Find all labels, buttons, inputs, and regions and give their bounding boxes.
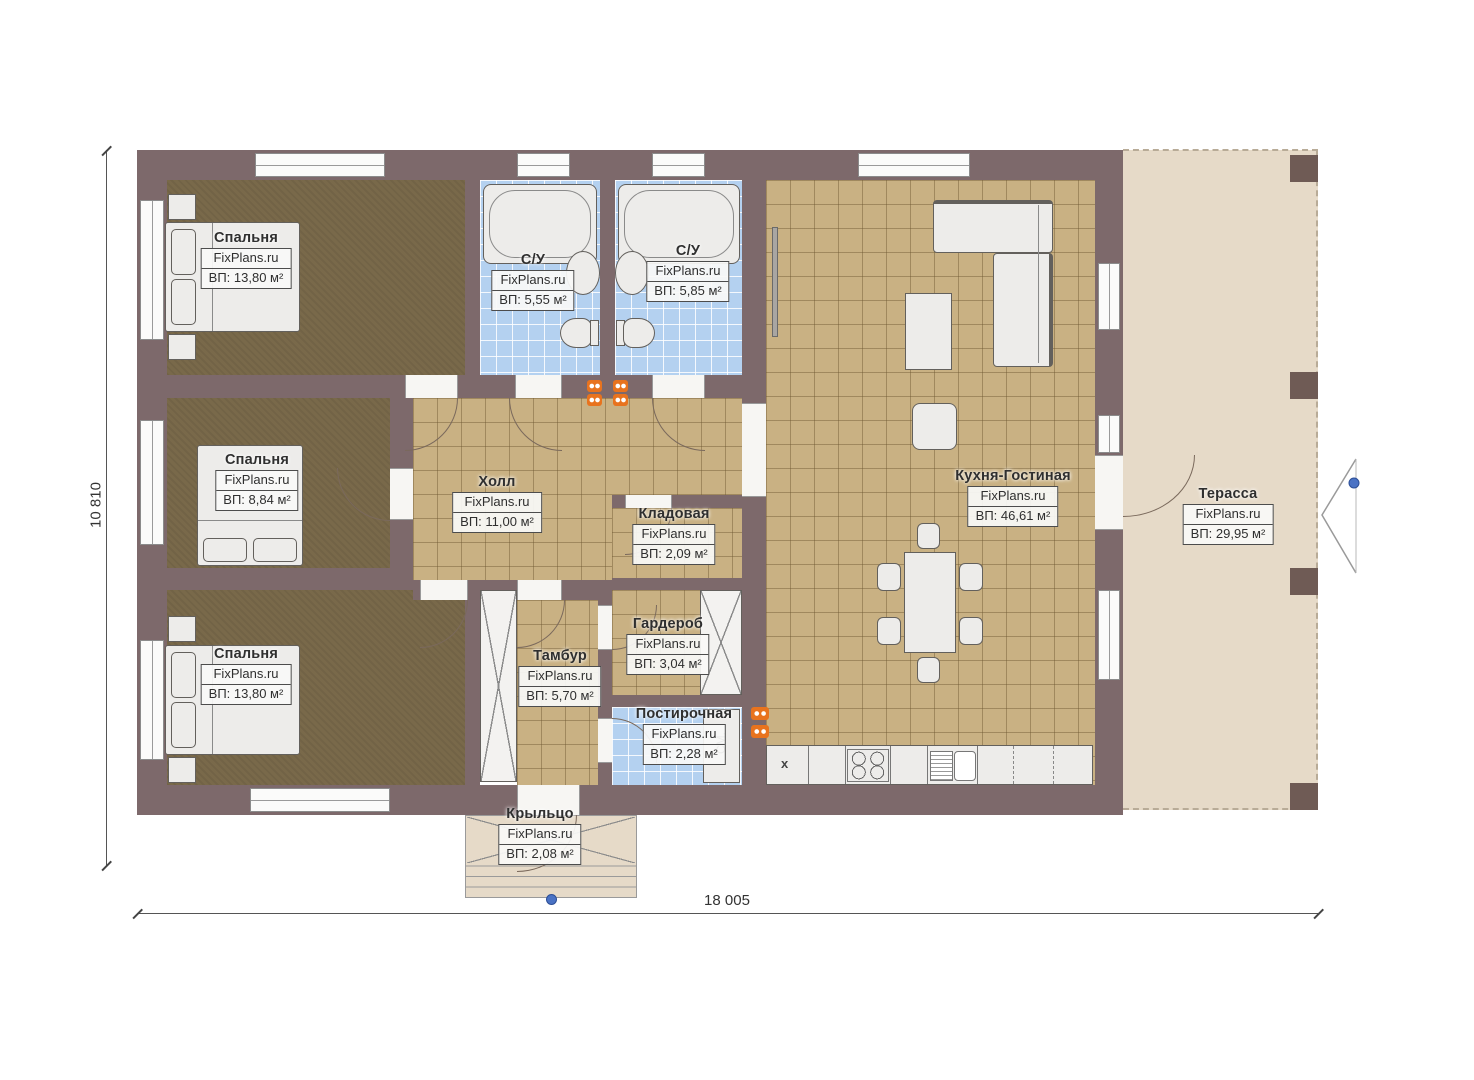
counter-divider — [890, 746, 891, 784]
wall-segment — [742, 180, 766, 403]
door-opening — [405, 375, 458, 398]
porch-entry-marker — [546, 894, 557, 905]
room-label-bedroom1: Спальня FixPlans.ru ВП: 13,80 м² — [201, 230, 292, 289]
room-label-storage: Кладовая FixPlans.ru ВП: 2,09 м² — [632, 506, 715, 565]
room-name: Тамбур — [533, 648, 587, 664]
room-label-porch: Крыльцо FixPlans.ru ВП: 2,08 м² — [498, 806, 581, 865]
terrace-door-opening — [1095, 455, 1123, 530]
sink — [615, 251, 649, 295]
dining-table — [904, 552, 956, 653]
room-area: ВП: 3,04 м² — [627, 655, 708, 674]
kitchen-passage-opening — [742, 403, 766, 497]
watermark: FixPlans.ru — [643, 725, 724, 745]
toilet — [623, 318, 655, 348]
room-label-hall: Холл FixPlans.ru ВП: 11,00 м² — [452, 474, 542, 533]
room-label-bath2: С/У FixPlans.ru ВП: 5,85 м² — [646, 243, 729, 302]
room-name: Спальня — [214, 646, 278, 662]
nightstand — [168, 616, 196, 642]
counter-divider — [1013, 746, 1014, 784]
toilet — [560, 318, 592, 348]
tv-panel — [772, 227, 778, 337]
bathtub-rim — [489, 190, 591, 258]
window — [140, 200, 164, 340]
watermark: FixPlans.ru — [647, 262, 728, 282]
dimension-width: 18 005 — [704, 892, 750, 909]
counter-divider — [927, 746, 928, 784]
door-opening — [598, 605, 612, 650]
blanket-line — [198, 520, 302, 521]
chair — [959, 563, 983, 591]
watermark: FixPlans.ru — [627, 635, 708, 655]
wall-segment — [137, 568, 413, 590]
watermark: FixPlans.ru — [216, 471, 297, 491]
pillow — [171, 702, 196, 748]
terrace-entry-arrow — [1312, 455, 1362, 577]
pillow — [203, 538, 247, 562]
room-name: С/У — [521, 252, 545, 268]
window — [140, 420, 164, 545]
counter-divider — [977, 746, 978, 784]
room-label-vestibule: Тамбур FixPlans.ru ВП: 5,70 м² — [518, 648, 601, 707]
watermark: FixPlans.ru — [1184, 505, 1273, 525]
floor-plan: СМ. x Спальня FixPlans.ru ВП: 13,80 м² С… — [0, 0, 1474, 1080]
riser-marker — [587, 394, 602, 406]
chair — [877, 617, 901, 645]
chair — [959, 617, 983, 645]
room-area: ВП: 5,85 м² — [647, 282, 728, 301]
sofa-cushion-line — [1038, 205, 1039, 363]
riser-marker — [751, 707, 769, 720]
watermark: FixPlans.ru — [492, 271, 573, 291]
window — [652, 153, 705, 177]
room-label-terrace: Терасса FixPlans.ru ВП: 29,95 м² — [1183, 486, 1274, 545]
door-opening — [598, 718, 612, 763]
terrace-edge-bottom — [1123, 808, 1318, 810]
kitchen-sink — [954, 751, 976, 781]
nightstand — [168, 334, 196, 360]
room-name: Спальня — [214, 230, 278, 246]
wall-segment — [465, 590, 480, 785]
watermark: FixPlans.ru — [519, 667, 600, 687]
room-area: ВП: 2,08 м² — [499, 845, 580, 864]
armchair — [912, 403, 957, 450]
window — [1098, 263, 1120, 330]
room-area: ВП: 5,55 м² — [492, 291, 573, 310]
room-label-bedroom2: Спальня FixPlans.ru ВП: 8,84 м² — [215, 452, 298, 511]
room-name: Крыльцо — [506, 806, 573, 822]
window — [255, 153, 385, 177]
terrace-pillar — [1290, 783, 1318, 810]
chair — [917, 657, 940, 683]
riser-marker — [613, 380, 628, 392]
room-area: ВП: 2,09 м² — [633, 545, 714, 564]
room-label-wardrobe: Гардероб FixPlans.ru ВП: 3,04 м² — [626, 616, 709, 675]
dimension-height: 10 810 — [88, 482, 105, 528]
room-name: Терасса — [1199, 486, 1258, 502]
pillow — [171, 229, 196, 275]
room-name: Гардероб — [633, 616, 703, 632]
counter-divider — [1053, 746, 1054, 784]
wall-segment — [600, 180, 615, 375]
watermark: FixPlans.ru — [633, 525, 714, 545]
room-area: ВП: 46,61 м² — [969, 507, 1058, 526]
room-name: Спальня — [225, 452, 289, 468]
door-opening — [390, 468, 413, 520]
chair — [877, 563, 901, 591]
room-area: ВП: 2,28 м² — [643, 745, 724, 764]
wall-segment — [742, 497, 766, 785]
pillow — [171, 279, 196, 325]
riser-marker — [587, 380, 602, 392]
room-name: Кладовая — [638, 506, 709, 522]
room-label-laundry: Постирочная FixPlans.ru ВП: 2,28 м² — [636, 706, 732, 765]
room-area: ВП: 11,00 м² — [453, 513, 541, 532]
room-name: Постирочная — [636, 706, 732, 722]
coffee-table — [905, 293, 952, 370]
counter-divider — [808, 746, 809, 784]
watermark: FixPlans.ru — [453, 493, 541, 513]
room-name: Кухня-Гостиная — [955, 468, 1071, 484]
riser-marker — [751, 725, 769, 738]
window — [517, 153, 570, 177]
toilet-tank — [590, 320, 599, 346]
window — [140, 640, 164, 760]
room-label-kitchen: Кухня-Гостиная FixPlans.ru ВП: 46,61 м² — [955, 468, 1071, 527]
fridge-mark: x — [781, 756, 788, 771]
watermark: FixPlans.ru — [202, 665, 291, 685]
terrace-pillar — [1290, 155, 1318, 182]
sofa — [933, 200, 1053, 253]
nightstand — [168, 194, 196, 220]
window — [250, 788, 390, 812]
dimension-line-left — [106, 150, 107, 866]
watermark: FixPlans.ru — [499, 825, 580, 845]
room-area: ВП: 13,80 м² — [202, 685, 291, 704]
wardrobe-cabinet — [480, 590, 517, 782]
sofa — [993, 253, 1053, 367]
watermark: FixPlans.ru — [202, 249, 291, 269]
stove — [847, 749, 889, 782]
pillow — [171, 652, 196, 698]
counter-divider — [845, 746, 846, 784]
door-opening — [420, 580, 468, 600]
door-opening — [517, 580, 562, 600]
sink-drainboard — [930, 751, 953, 781]
wall-segment — [465, 180, 480, 375]
room-name: С/У — [676, 243, 700, 259]
terrace-edge-top — [1123, 149, 1318, 151]
room-label-bath1: С/У FixPlans.ru ВП: 5,55 м² — [491, 252, 574, 311]
room-label-bedroom3: Спальня FixPlans.ru ВП: 13,80 м² — [201, 646, 292, 705]
window — [1098, 415, 1120, 453]
window — [1098, 590, 1120, 680]
wall-segment — [612, 578, 742, 590]
room-area: ВП: 8,84 м² — [216, 491, 297, 510]
watermark: FixPlans.ru — [969, 487, 1058, 507]
dimension-line-bottom — [137, 913, 1318, 914]
room-name: Холл — [478, 474, 515, 490]
room-area: ВП: 13,80 м² — [202, 269, 291, 288]
riser-marker — [613, 394, 628, 406]
door-opening — [652, 375, 705, 398]
window — [858, 153, 970, 177]
room-area: ВП: 29,95 м² — [1184, 525, 1273, 544]
terrace-pillar — [1290, 372, 1318, 399]
room-area: ВП: 5,70 м² — [519, 687, 600, 706]
nightstand — [168, 757, 196, 783]
pillow — [253, 538, 297, 562]
door-opening — [515, 375, 562, 398]
chair — [917, 523, 940, 549]
